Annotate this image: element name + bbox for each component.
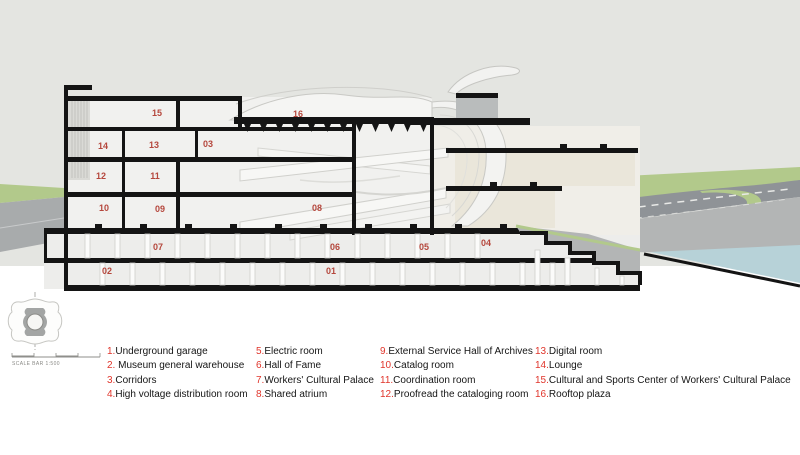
scale-bar-caption: SCALE BAR 1:500 <box>12 361 60 367</box>
legend-item-label: High voltage distribution room <box>115 389 247 400</box>
section-label-14: 14 <box>98 141 108 151</box>
legend-item: 9.External Service Hall of Archives <box>380 345 533 359</box>
legend-item: 6.Hall of Fame <box>256 359 374 373</box>
legend-item: 4.High voltage distribution room <box>107 388 248 402</box>
legend-item: 5.Electric room <box>256 345 374 359</box>
section-label-08: 08 <box>312 203 322 213</box>
legend-item-label: Corridors <box>115 375 156 386</box>
section-label-02: 02 <box>102 266 112 276</box>
section-label-06: 06 <box>330 242 340 252</box>
site-key-diagram <box>8 292 62 352</box>
section-label-05: 05 <box>419 242 429 252</box>
legend-item-label: Coordination room <box>393 375 475 386</box>
legend-item-number: 12. <box>380 389 394 400</box>
legend-item-label: External Service Hall of Archives <box>388 346 533 357</box>
legend-item-label: Proofread the cataloging room <box>394 389 529 400</box>
scale-bar <box>12 353 100 357</box>
legend-item-label: Lounge <box>549 360 582 371</box>
legend-item: 1.Underground garage <box>107 345 248 359</box>
legend-item-number: 16. <box>535 389 549 400</box>
section-label-16: 16 <box>293 109 303 119</box>
legend-item-label: Electric room <box>264 346 322 357</box>
legend-item-label: Rooftop plaza <box>549 389 611 400</box>
legend-column-1: 1.Underground garage 2. Museum general w… <box>107 345 248 403</box>
legend-item-label: Underground garage <box>115 346 207 357</box>
legend-column-4: 13.Digital room 14.Lounge 15.Cultural an… <box>535 345 791 403</box>
legend-item: 3.Corridors <box>107 374 248 388</box>
legend-item: 15.Cultural and Sports Center of Workers… <box>535 374 791 388</box>
legend-item-label: Museum general warehouse <box>115 360 244 371</box>
legend-item: 10.Catalog room <box>380 359 533 373</box>
legend-column-2: 5.Electric room 6.Hall of Fame 7.Workers… <box>256 345 374 403</box>
section-label-11: 11 <box>150 171 160 181</box>
legend-item-number: 11. <box>380 375 393 386</box>
legend-item: 14.Lounge <box>535 359 791 373</box>
legend-item-label: Digital room <box>549 346 602 357</box>
section-label-10: 10 <box>99 203 109 213</box>
section-label-07: 07 <box>153 242 163 252</box>
legend-item-number: 13. <box>535 346 549 357</box>
section-label-13: 13 <box>149 140 159 150</box>
legend-item-number: 15. <box>535 375 549 386</box>
section-label-12: 12 <box>96 171 106 181</box>
legend-item-number: 10. <box>380 360 394 371</box>
legend-item: 2. Museum general warehouse <box>107 359 248 373</box>
legend-item-label: Catalog room <box>394 360 454 371</box>
section-label-01: 01 <box>326 266 336 276</box>
legend-item-number: 14. <box>535 360 549 371</box>
section-label-03: 03 <box>203 139 213 149</box>
legend-item: 16.Rooftop plaza <box>535 388 791 402</box>
legend-item-label: Hall of Fame <box>264 360 321 371</box>
section-label-15: 15 <box>152 108 162 118</box>
legend-item-label: Shared atrium <box>264 389 327 400</box>
section-label-04: 04 <box>481 238 491 248</box>
legend-item: 11.Coordination room <box>380 374 533 388</box>
legend-item-label: Cultural and Sports Center of Workers' C… <box>549 375 791 386</box>
legend-item: 12.Proofread the cataloging room <box>380 388 533 402</box>
legend-item-label: Workers' Cultural Palace <box>264 375 374 386</box>
section-label-09: 09 <box>155 204 165 214</box>
legend-column-3: 9.External Service Hall of Archives 10.C… <box>380 345 533 403</box>
legend-item: 8.Shared atrium <box>256 388 374 402</box>
legend-item: 13.Digital room <box>535 345 791 359</box>
legend-item: 7.Workers' Cultural Palace <box>256 374 374 388</box>
